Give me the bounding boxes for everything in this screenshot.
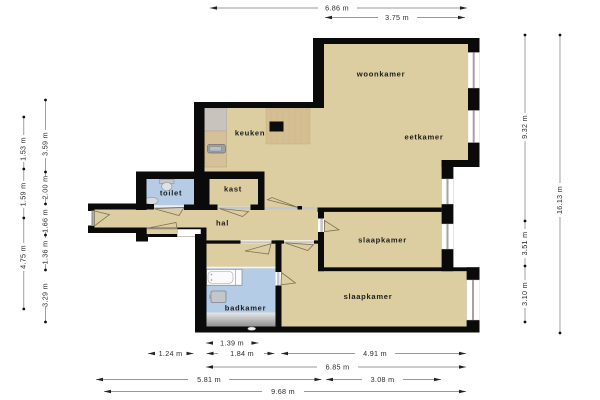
svg-text:badkamer: badkamer <box>225 304 266 313</box>
svg-text:6.86 m: 6.86 m <box>325 4 349 13</box>
svg-text:3.10 m: 3.10 m <box>520 282 529 306</box>
svg-text:3.51 m: 3.51 m <box>520 232 529 256</box>
svg-text:4.75 m: 4.75 m <box>19 245 28 269</box>
svg-text:9.68 m: 9.68 m <box>271 387 295 396</box>
svg-text:16.13 m: 16.13 m <box>555 186 564 214</box>
svg-text:4.91 m: 4.91 m <box>363 349 387 358</box>
svg-text:3.29 m: 3.29 m <box>40 283 49 307</box>
svg-text:kast: kast <box>224 185 242 194</box>
svg-text:1.53 m: 1.53 m <box>19 137 28 161</box>
svg-text:1.84 m: 1.84 m <box>230 349 254 358</box>
svg-text:slaapkamer: slaapkamer <box>358 236 407 245</box>
svg-text:1.36 m: 1.36 m <box>40 241 49 265</box>
svg-text:toilet: toilet <box>160 189 182 198</box>
svg-text:6.85 m: 6.85 m <box>326 363 350 372</box>
svg-text:1.24 m: 1.24 m <box>159 349 183 358</box>
svg-text:eetkamer: eetkamer <box>405 133 444 142</box>
svg-text:1.66 m: 1.66 m <box>40 209 49 233</box>
svg-text:1.39 m: 1.39 m <box>220 339 244 348</box>
svg-text:3.75 m: 3.75 m <box>385 13 409 22</box>
svg-text:3.08 m: 3.08 m <box>371 375 395 384</box>
svg-text:woonkamer: woonkamer <box>356 70 406 79</box>
svg-text:slaapkamer: slaapkamer <box>344 292 393 301</box>
svg-text:1.59 m: 1.59 m <box>19 183 28 207</box>
svg-text:3.59 m: 3.59 m <box>40 132 49 156</box>
svg-text:5.81 m: 5.81 m <box>197 375 221 384</box>
svg-text:keuken: keuken <box>235 129 265 138</box>
svg-text:2.00 m: 2.00 m <box>40 176 49 200</box>
svg-text:hal: hal <box>216 219 229 228</box>
svg-text:9.32 m: 9.32 m <box>520 115 529 139</box>
